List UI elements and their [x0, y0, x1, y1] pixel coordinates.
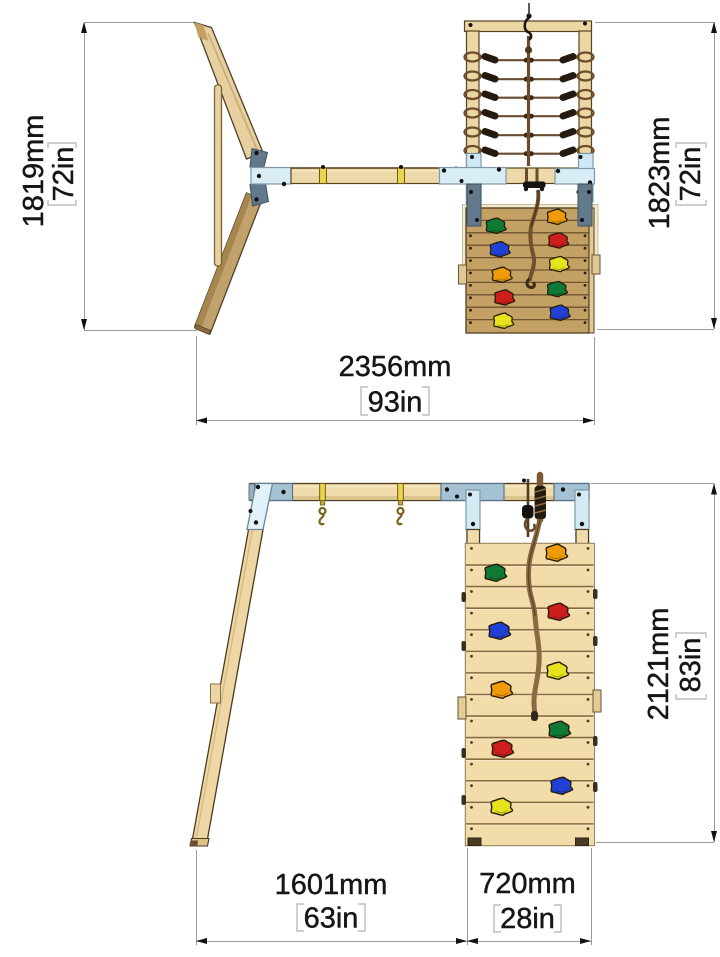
- svg-text:83in: 83in: [675, 638, 707, 693]
- svg-text:1819mm: 1819mm: [18, 115, 50, 228]
- svg-text:2121mm: 2121mm: [643, 608, 675, 721]
- svg-text:720mm: 720mm: [479, 868, 576, 900]
- svg-text:1601mm: 1601mm: [275, 869, 388, 901]
- svg-text:72in: 72in: [48, 147, 80, 202]
- svg-text:72in: 72in: [675, 147, 707, 202]
- svg-text:28in: 28in: [500, 903, 555, 935]
- svg-text:1823mm: 1823mm: [644, 117, 676, 230]
- svg-text:63in: 63in: [304, 903, 359, 935]
- svg-text:93in: 93in: [368, 387, 423, 419]
- svg-text:2356mm: 2356mm: [339, 351, 452, 383]
